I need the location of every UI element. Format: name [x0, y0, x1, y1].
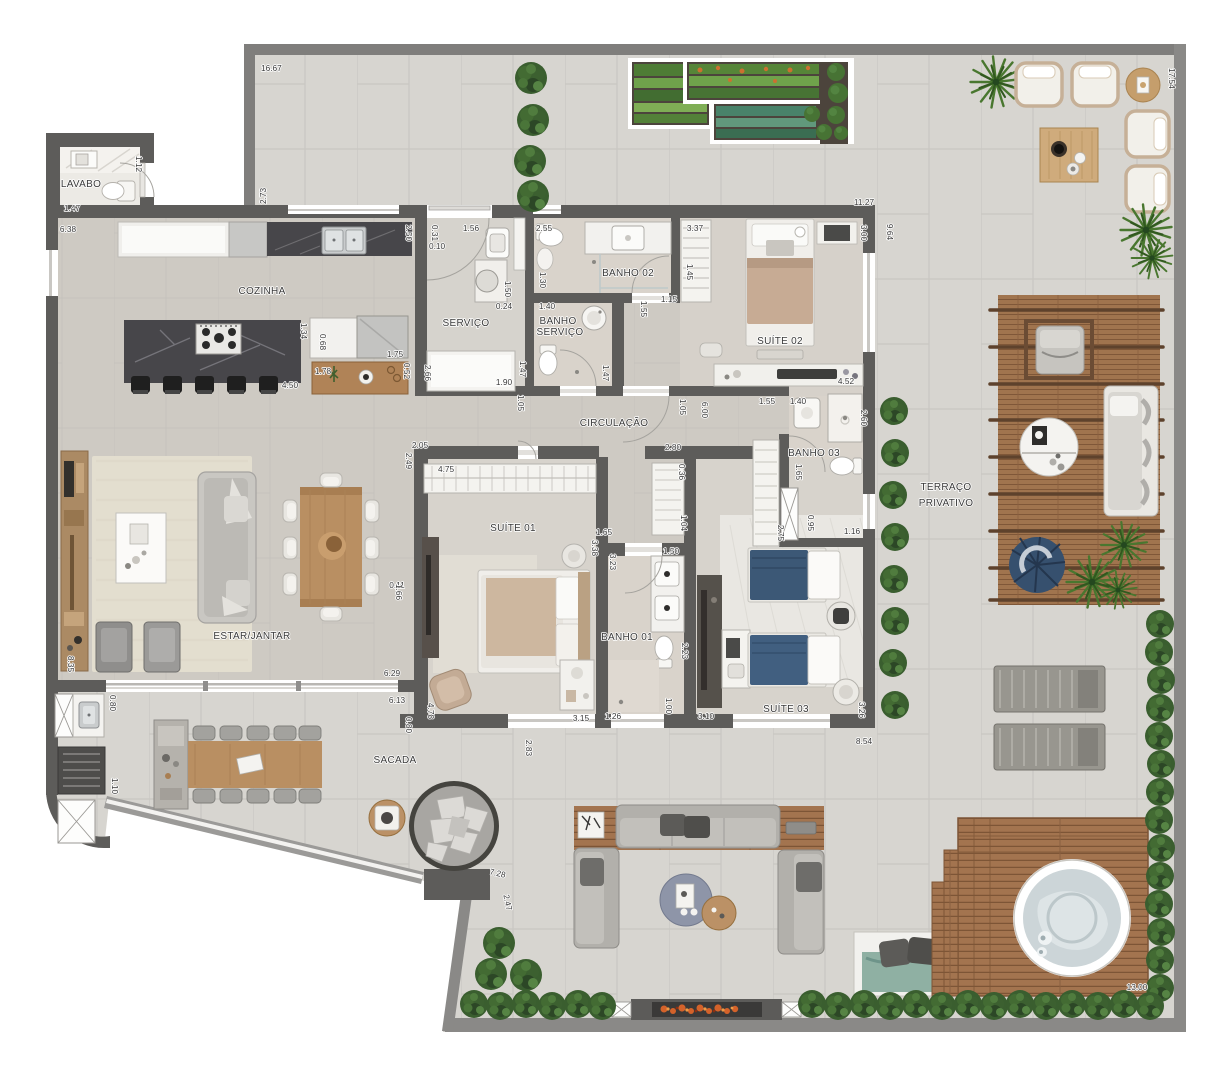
svg-text:1.16: 1.16 [844, 526, 861, 536]
svg-text:1.30: 1.30 [538, 272, 548, 289]
svg-text:1.47: 1.47 [601, 365, 611, 382]
svg-text:SUÍTE 02: SUÍTE 02 [757, 334, 803, 347]
svg-text:0.52: 0.52 [402, 363, 412, 380]
svg-text:3.23: 3.23 [608, 554, 618, 571]
svg-text:3.38: 3.38 [590, 540, 600, 557]
svg-text:0.80: 0.80 [404, 717, 414, 734]
svg-text:2.55: 2.55 [536, 223, 553, 233]
svg-text:PRIVATIVO: PRIVATIVO [919, 498, 974, 509]
svg-text:2.73: 2.73 [258, 187, 268, 204]
svg-text:3.15: 3.15 [573, 713, 590, 723]
svg-text:1.34: 1.34 [299, 323, 309, 340]
svg-text:CIRCULAÇÃO: CIRCULAÇÃO [580, 416, 649, 429]
svg-text:1.45: 1.45 [685, 264, 695, 281]
svg-text:BANHO: BANHO [539, 316, 576, 327]
svg-text:1.78: 1.78 [315, 366, 332, 376]
svg-text:8.35: 8.35 [66, 656, 76, 673]
svg-text:2.60: 2.60 [859, 410, 869, 427]
svg-text:1.47: 1.47 [518, 361, 528, 378]
svg-text:1.50: 1.50 [503, 281, 513, 298]
svg-text:1.15: 1.15 [661, 294, 678, 304]
svg-text:1.05: 1.05 [678, 399, 688, 416]
svg-text:2.66: 2.66 [423, 365, 433, 382]
svg-text:COZINHA: COZINHA [238, 286, 285, 297]
svg-text:0.10: 0.10 [429, 241, 446, 251]
svg-text:SUÍTE 01: SUÍTE 01 [490, 521, 536, 534]
svg-text:1.90: 1.90 [496, 377, 513, 387]
svg-text:2.50: 2.50 [404, 225, 414, 242]
svg-text:0.95: 0.95 [806, 515, 816, 532]
svg-text:1.47: 1.47 [64, 203, 81, 213]
svg-text:2.23: 2.23 [680, 643, 690, 660]
svg-text:1.04: 1.04 [679, 515, 689, 532]
svg-text:SERVIÇO: SERVIÇO [443, 318, 490, 329]
svg-text:1.40: 1.40 [790, 396, 807, 406]
svg-text:9.64: 9.64 [885, 224, 895, 241]
svg-text:2.83: 2.83 [524, 740, 534, 757]
svg-text:4.75: 4.75 [438, 464, 455, 474]
svg-text:6.38: 6.38 [60, 224, 77, 234]
svg-text:SUÍTE 03: SUÍTE 03 [763, 702, 809, 715]
svg-text:1.66: 1.66 [394, 584, 404, 601]
svg-text:16.67: 16.67 [261, 63, 282, 73]
svg-text:0.31: 0.31 [430, 225, 440, 242]
svg-text:0.24: 0.24 [496, 301, 513, 311]
svg-text:8.54: 8.54 [856, 736, 873, 746]
svg-text:1.50: 1.50 [663, 546, 680, 556]
svg-text:3.10: 3.10 [698, 711, 715, 721]
svg-text:0.36: 0.36 [677, 464, 687, 481]
svg-text:6.29: 6.29 [384, 668, 401, 678]
svg-text:4.52: 4.52 [838, 376, 855, 386]
svg-text:2.05: 2.05 [412, 440, 429, 450]
svg-text:BANHO 02: BANHO 02 [602, 268, 654, 279]
svg-text:BANHO 03: BANHO 03 [788, 448, 840, 459]
svg-text:6.00: 6.00 [700, 402, 710, 419]
svg-text:0.68: 0.68 [318, 334, 328, 351]
svg-text:11.27: 11.27 [854, 197, 875, 207]
svg-text:2.49: 2.49 [404, 453, 414, 470]
svg-text:1.55: 1.55 [639, 301, 649, 318]
svg-text:1.55: 1.55 [759, 396, 776, 406]
svg-text:1.56: 1.56 [463, 223, 480, 233]
svg-text:1.12: 1.12 [134, 156, 144, 173]
svg-text:TERRAÇO: TERRAÇO [921, 482, 972, 493]
svg-text:6.13: 6.13 [389, 695, 406, 705]
svg-text:3.37: 3.37 [687, 223, 704, 233]
svg-text:SACADA: SACADA [374, 755, 417, 766]
svg-text:13.00: 13.00 [1127, 982, 1148, 992]
svg-text:1.05: 1.05 [516, 395, 526, 412]
svg-text:1.65: 1.65 [794, 464, 804, 481]
svg-text:4.78: 4.78 [426, 703, 436, 720]
svg-text:2.75: 2.75 [776, 525, 786, 542]
svg-text:1.00: 1.00 [664, 698, 674, 715]
svg-text:1.26: 1.26 [605, 711, 622, 721]
svg-text:LAVABO: LAVABO [61, 179, 101, 190]
svg-text:1.65: 1.65 [596, 527, 613, 537]
svg-text:1.10: 1.10 [110, 778, 120, 795]
svg-text:SERVIÇO: SERVIÇO [537, 327, 584, 338]
svg-text:0.80: 0.80 [108, 695, 118, 712]
svg-text:1.75: 1.75 [387, 349, 404, 359]
svg-text:17.54: 17.54 [1167, 68, 1177, 89]
svg-text:ESTAR/JANTAR: ESTAR/JANTAR [213, 631, 290, 642]
svg-text:2.80: 2.80 [665, 442, 682, 452]
svg-text:1.40: 1.40 [539, 301, 556, 311]
svg-text:BANHO 01: BANHO 01 [601, 632, 653, 643]
svg-text:4.50: 4.50 [282, 380, 299, 390]
svg-text:3.26: 3.26 [857, 702, 867, 719]
svg-text:3.00: 3.00 [859, 225, 869, 242]
